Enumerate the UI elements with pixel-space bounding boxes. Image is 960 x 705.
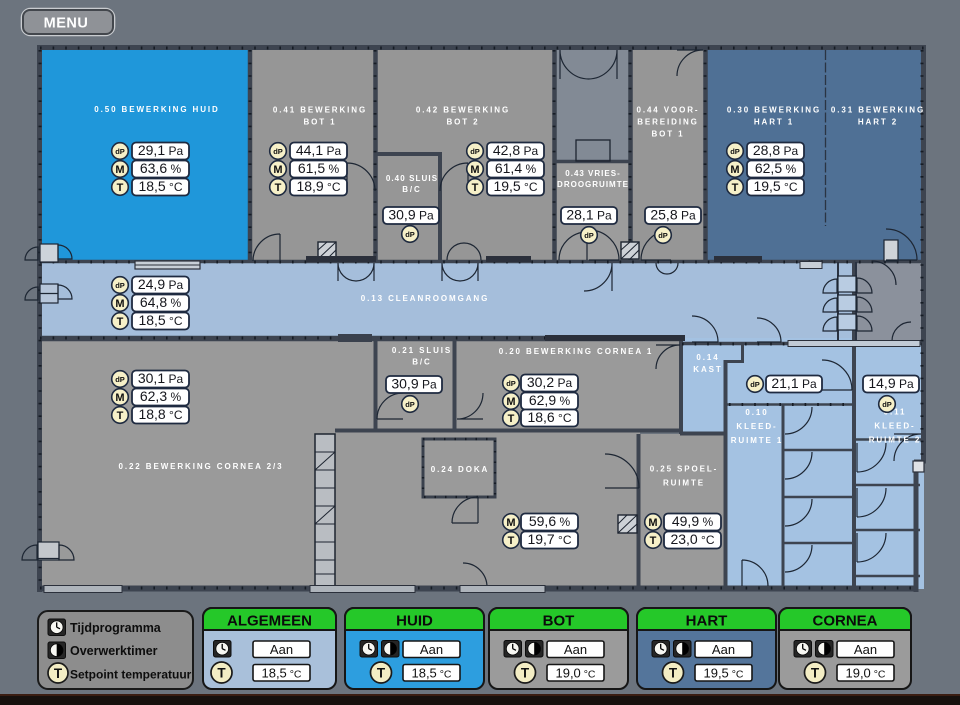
svg-text:30,2 Pa: 30,2 Pa <box>527 374 573 390</box>
svg-text:0.31 BEWERKING: 0.31 BEWERKING <box>831 106 925 115</box>
svg-text:M: M <box>730 164 739 176</box>
svg-text:M: M <box>115 298 124 310</box>
svg-text:62,3 %: 62,3 % <box>140 388 182 404</box>
svg-text:ALGEMEEN: ALGEMEEN <box>227 613 312 630</box>
svg-text:28,1 Pa: 28,1 Pa <box>566 207 612 223</box>
svg-text:Aan: Aan <box>270 642 293 657</box>
svg-text:dP: dP <box>405 400 415 409</box>
svg-text:M: M <box>115 164 124 176</box>
svg-text:25,8 Pa: 25,8 Pa <box>650 207 696 223</box>
svg-text:49,9 %: 49,9 % <box>672 513 714 529</box>
svg-text:MENU: MENU <box>44 16 89 32</box>
svg-text:0.42 BEWERKING: 0.42 BEWERKING <box>416 106 510 115</box>
svg-text:M: M <box>470 164 479 176</box>
svg-text:0.44 VOOR-: 0.44 VOOR- <box>636 106 699 115</box>
svg-text:30,9 Pa: 30,9 Pa <box>388 207 434 223</box>
svg-text:T: T <box>117 316 124 328</box>
svg-text:62,9 %: 62,9 % <box>529 392 571 408</box>
svg-text:Overwerktimer: Overwerktimer <box>70 644 158 658</box>
svg-text:Tijdprogramma: Tijdprogramma <box>70 621 162 635</box>
svg-text:Aan: Aan <box>854 642 877 657</box>
svg-text:T: T <box>117 410 124 422</box>
svg-text:0.10: 0.10 <box>745 408 768 417</box>
svg-text:T: T <box>732 182 739 194</box>
svg-text:0.13 CLEANROOMGANG: 0.13 CLEANROOMGANG <box>361 294 489 303</box>
svg-text:18,8 °C: 18,8 °C <box>138 406 182 422</box>
svg-text:30,1 Pa: 30,1 Pa <box>138 370 184 386</box>
svg-text:0.24 DOKA: 0.24 DOKA <box>431 465 489 474</box>
svg-text:KAST: KAST <box>693 365 722 374</box>
svg-text:dP: dP <box>273 147 283 156</box>
svg-text:64,8 %: 64,8 % <box>140 294 182 310</box>
svg-text:RUIMTE: RUIMTE <box>663 479 705 488</box>
svg-text:61,4 %: 61,4 % <box>495 160 537 176</box>
svg-text:dP: dP <box>658 231 668 240</box>
svg-text:HART: HART <box>686 613 728 630</box>
svg-text:T: T <box>472 182 479 194</box>
svg-text:KLEED-: KLEED- <box>874 422 915 431</box>
svg-text:dP: dP <box>470 147 480 156</box>
svg-text:T: T <box>508 413 515 425</box>
svg-text:B/C: B/C <box>402 185 421 194</box>
svg-text:0.50 BEWERKING HUID: 0.50 BEWERKING HUID <box>94 105 219 114</box>
svg-text:T: T <box>54 666 63 681</box>
svg-text:19,7 °C: 19,7 °C <box>527 531 571 547</box>
svg-text:HART 2: HART 2 <box>858 118 898 127</box>
svg-text:dP: dP <box>115 147 125 156</box>
svg-text:T: T <box>669 666 678 681</box>
svg-text:T: T <box>377 666 386 681</box>
svg-text:0.41 BEWERKING: 0.41 BEWERKING <box>273 106 367 115</box>
svg-text:Setpoint temperatuur: Setpoint temperatuur <box>70 668 192 682</box>
svg-text:Aan: Aan <box>712 642 735 657</box>
svg-text:28,8 Pa: 28,8 Pa <box>753 142 799 158</box>
svg-text:30,9 Pa: 30,9 Pa <box>391 376 437 392</box>
svg-text:61,5 %: 61,5 % <box>298 160 340 176</box>
svg-text:M: M <box>648 517 657 529</box>
svg-text:0.43 VRIES-: 0.43 VRIES- <box>565 169 620 178</box>
svg-text:BOT 2: BOT 2 <box>446 118 479 127</box>
svg-text:KLEED-: KLEED- <box>736 422 777 431</box>
svg-text:dP: dP <box>115 281 125 290</box>
svg-text:dP: dP <box>115 375 125 384</box>
svg-text:M: M <box>115 392 124 404</box>
svg-text:18,9 °C: 18,9 °C <box>296 178 340 194</box>
svg-text:M: M <box>506 396 515 408</box>
svg-text:BOT 1: BOT 1 <box>303 118 336 127</box>
svg-text:T: T <box>811 666 820 681</box>
svg-text:29,1 Pa: 29,1 Pa <box>138 142 184 158</box>
svg-text:0.25 SPOEL-: 0.25 SPOEL- <box>650 465 718 474</box>
svg-text:0.21 SLUIS: 0.21 SLUIS <box>392 346 452 355</box>
svg-text:BOT: BOT <box>543 613 575 630</box>
svg-text:RUIMTE 2: RUIMTE 2 <box>869 436 922 445</box>
svg-text:HUID: HUID <box>396 613 433 630</box>
svg-text:42,8 Pa: 42,8 Pa <box>493 142 539 158</box>
svg-text:T: T <box>117 182 124 194</box>
svg-text:T: T <box>521 666 530 681</box>
svg-text:19,5 °C: 19,5 °C <box>753 178 797 194</box>
svg-text:24,9 Pa: 24,9 Pa <box>138 276 184 292</box>
svg-text:T: T <box>508 535 515 547</box>
svg-text:18,5 °C: 18,5 °C <box>138 178 182 194</box>
svg-text:0.22 BEWERKING CORNEA 2/3: 0.22 BEWERKING CORNEA 2/3 <box>118 462 283 471</box>
svg-text:CORNEA: CORNEA <box>812 613 877 630</box>
svg-text:19,0 °C: 19,0 °C <box>555 666 595 681</box>
svg-text:62,5 %: 62,5 % <box>755 160 797 176</box>
svg-text:0.20 BEWERKING CORNEA 1: 0.20 BEWERKING CORNEA 1 <box>499 347 654 356</box>
svg-text:RUIMTE 1: RUIMTE 1 <box>731 436 784 445</box>
svg-text:0.30 BEWERKING: 0.30 BEWERKING <box>727 106 821 115</box>
svg-text:DROOGRUIMTE: DROOGRUIMTE <box>557 180 629 189</box>
svg-text:dP: dP <box>405 230 415 239</box>
svg-text:19,5 °C: 19,5 °C <box>703 666 743 681</box>
svg-text:18,5 °C: 18,5 °C <box>261 666 301 681</box>
svg-text:Aan: Aan <box>420 642 443 657</box>
svg-text:dP: dP <box>882 400 892 409</box>
svg-text:44,1 Pa: 44,1 Pa <box>296 142 342 158</box>
svg-text:0.14: 0.14 <box>696 353 719 362</box>
svg-text:M: M <box>506 517 515 529</box>
svg-text:M: M <box>273 164 282 176</box>
svg-text:HART 1: HART 1 <box>754 118 794 127</box>
svg-text:21,1 Pa: 21,1 Pa <box>771 375 817 391</box>
svg-text:19,0 °C: 19,0 °C <box>845 666 885 681</box>
svg-text:63,6 %: 63,6 % <box>140 160 182 176</box>
svg-text:18,5 °C: 18,5 °C <box>138 312 182 328</box>
svg-text:14,9 Pa: 14,9 Pa <box>868 375 914 391</box>
svg-text:BEREIDING: BEREIDING <box>637 118 699 127</box>
svg-text:23,0 °C: 23,0 °C <box>670 531 714 547</box>
svg-text:19,5 °C: 19,5 °C <box>493 178 537 194</box>
svg-text:T: T <box>275 182 282 194</box>
svg-text:dP: dP <box>506 379 516 388</box>
svg-text:T: T <box>650 535 657 547</box>
svg-text:0.40 SLUIS: 0.40 SLUIS <box>386 174 438 183</box>
svg-text:dP: dP <box>584 231 594 240</box>
svg-text:18,5 °C: 18,5 °C <box>411 666 451 681</box>
svg-text:dP: dP <box>730 147 740 156</box>
svg-text:Aan: Aan <box>564 642 587 657</box>
svg-text:dP: dP <box>750 380 760 389</box>
svg-text:59,6 %: 59,6 % <box>529 513 571 529</box>
svg-text:T: T <box>217 666 226 681</box>
svg-text:18,6 °C: 18,6 °C <box>527 409 571 425</box>
svg-text:B/C: B/C <box>412 358 431 367</box>
svg-text:BOT 1: BOT 1 <box>651 130 684 139</box>
